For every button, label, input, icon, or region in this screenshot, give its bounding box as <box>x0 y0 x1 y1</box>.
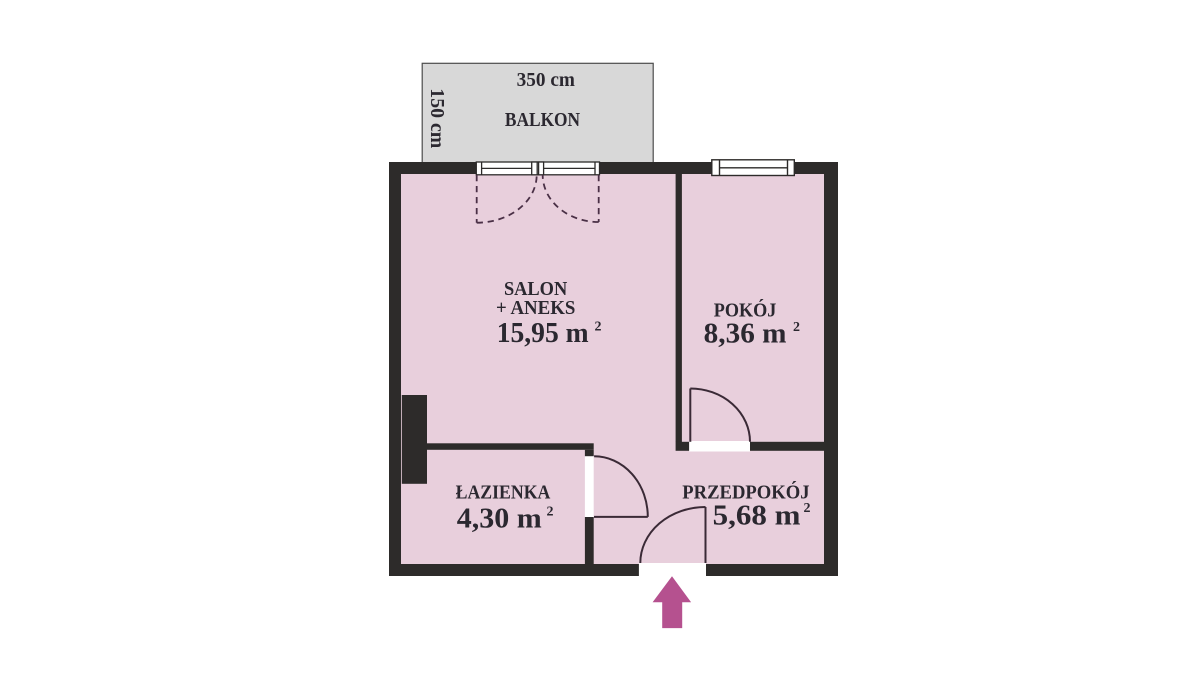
svg-text:BALKON: BALKON <box>505 109 581 131</box>
svg-text:ŁAZIENKA: ŁAZIENKA <box>456 482 551 504</box>
svg-text:350 cm: 350 cm <box>517 69 576 91</box>
svg-text:5,68 m: 5,68 m <box>713 499 801 531</box>
svg-text:150 cm: 150 cm <box>426 88 448 148</box>
svg-text:2: 2 <box>793 320 800 335</box>
svg-text:15,95 m: 15,95 m <box>497 317 589 349</box>
svg-text:2: 2 <box>804 501 811 516</box>
svg-text:2: 2 <box>595 320 602 335</box>
svg-text:+ ANEKS: + ANEKS <box>496 297 575 319</box>
svg-text:4,30 m: 4,30 m <box>457 502 542 534</box>
svg-text:2: 2 <box>547 505 554 520</box>
svg-text:8,36 m: 8,36 m <box>704 319 787 350</box>
